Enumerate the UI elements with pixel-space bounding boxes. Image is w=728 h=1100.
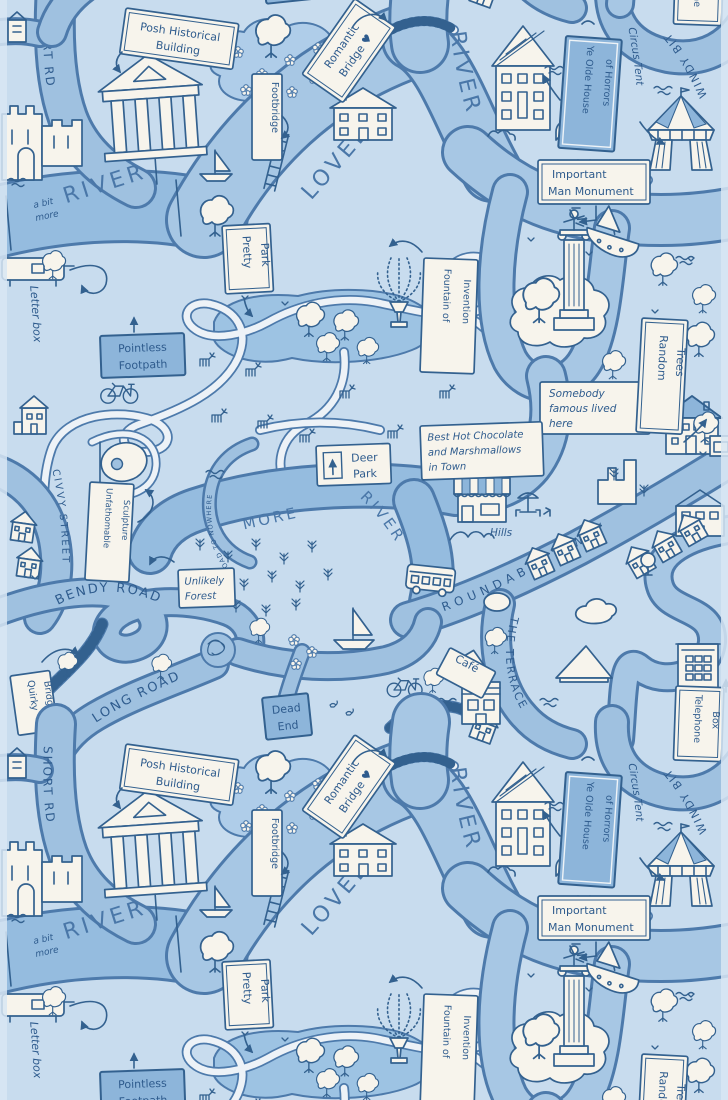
svg-text:Deer: Deer <box>351 451 378 465</box>
svg-text:Somebody: Somebody <box>549 388 606 400</box>
sign-dead-end: Dead End <box>262 693 312 740</box>
svg-text:Footbridge: Footbridge <box>269 82 280 133</box>
svg-text:in Town: in Town <box>428 461 466 473</box>
svg-text:Footpath: Footpath <box>118 358 167 373</box>
svg-text:End: End <box>277 718 299 733</box>
svg-text:Unlikely: Unlikely <box>184 575 225 587</box>
sign-telephone-box: Telephone Box <box>673 686 724 762</box>
hills-label: Hills <box>490 527 513 539</box>
right-edge-strip <box>721 0 728 1100</box>
sign-somebody-famous: Somebody famous lived here <box>540 382 650 434</box>
sign-best-hot-chocolate: Best Hot Chocolate and Marshmallows in T… <box>420 422 544 480</box>
svg-text:Trees: Trees <box>673 347 688 378</box>
sign-ye-olde: Ye Olde House of Horrors <box>558 36 622 152</box>
svg-text:Pretty: Pretty <box>240 235 255 269</box>
map-canvas: SHORT RD a bit more RIVER LOVELY RIVER W… <box>0 0 728 1100</box>
svg-text:Forest: Forest <box>185 591 218 603</box>
sign-pointless-footpath: Pointless Footpath <box>100 333 185 378</box>
sign-unlikely-forest: Unlikely Forest <box>178 568 235 608</box>
sign-footbridge: Footbridge <box>252 74 282 160</box>
svg-text:Man Monument: Man Monument <box>548 185 634 198</box>
sign-important-man: Important Man Monument <box>538 160 650 204</box>
svg-text:Invention: Invention <box>460 279 473 324</box>
svg-text:Park: Park <box>258 242 272 267</box>
svg-text:famous lived: famous lived <box>549 403 617 415</box>
svg-text:Important: Important <box>552 168 607 181</box>
svg-text:Pointless: Pointless <box>118 341 167 356</box>
shop-icon <box>454 478 510 522</box>
svg-text:Fountain of: Fountain of <box>440 269 453 323</box>
svg-text:Random: Random <box>655 335 670 381</box>
sign-random-trees: Random Trees <box>636 318 689 434</box>
sign-pretty-park: Pretty Park <box>222 223 273 293</box>
scribble-junction-icon <box>201 633 235 667</box>
sign-fountain-of-invention: Fountain of Invention <box>420 258 478 374</box>
svg-text:Telephone: Telephone <box>691 694 704 744</box>
svg-text:Park: Park <box>353 467 378 481</box>
svg-text:here: here <box>549 418 573 430</box>
sign-unfathomable-sculpture: Unfathomable Sculpture <box>85 482 134 582</box>
map-wallpaper: SHORT RD a bit more RIVER LOVELY RIVER W… <box>0 0 728 1100</box>
left-edge-strip <box>0 0 7 1100</box>
svg-text:Sculpture: Sculpture <box>119 500 131 541</box>
svg-text:Box: Box <box>710 711 722 729</box>
sign-deer-park: Deer Park <box>316 443 391 486</box>
telephone-box-icon <box>676 644 720 690</box>
